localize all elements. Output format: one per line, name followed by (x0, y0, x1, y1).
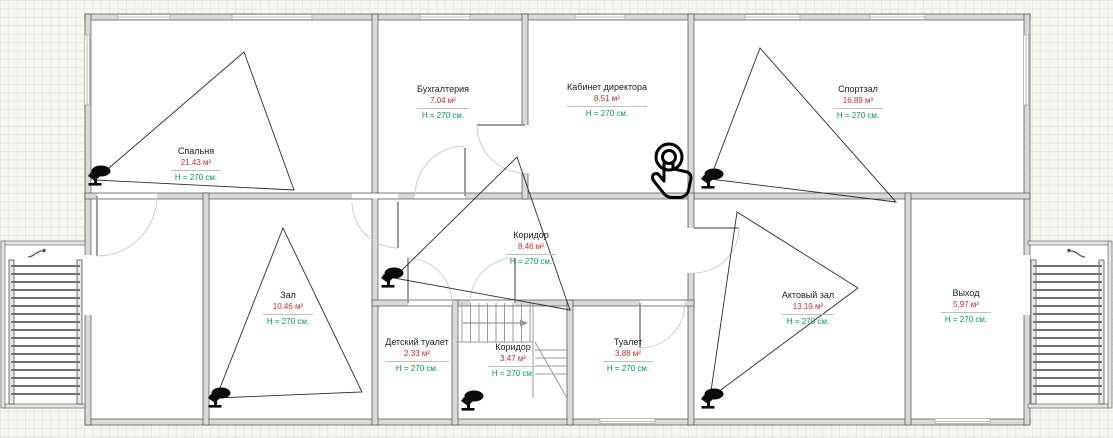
room-label-aktovyi-zal[interactable]: Актовый зал 13.19 м² H = 270 см. (782, 290, 834, 327)
window (870, 15, 925, 20)
room-label-zal[interactable]: Зал 10.46 м² H = 270 см. (263, 290, 313, 327)
room-label-buhgalteriya[interactable]: Бухгалтерия 7.04 м² H = 270 см. (417, 84, 469, 121)
room-label-vyhod[interactable]: Выход 5.97 м² H = 270 см. (941, 288, 991, 325)
exit-opening (935, 419, 990, 424)
window (745, 15, 800, 20)
room-label-detskiy-tualet[interactable]: Детский туалет 2.33 м² H = 270 см. (385, 337, 449, 374)
floor-plan (0, 0, 1113, 438)
room-label-koridor-lestnitsa[interactable]: Коридор 3.47 м² H = 270 см. (488, 342, 538, 379)
window (232, 15, 312, 20)
exit-opening (600, 419, 655, 424)
building-footprint (5, 14, 1108, 425)
window (1024, 35, 1029, 105)
window (575, 15, 625, 20)
room-label-koridor[interactable]: Коридор 8.46 м² H = 270 см. (506, 230, 556, 267)
room-label-sportzal[interactable]: Спортзал 16.89 м² H = 270 см. (833, 84, 883, 121)
window (118, 15, 170, 20)
room-label-tualet[interactable]: Туалет 3.88 м² H = 270 см. (603, 337, 653, 374)
room-label-spalnya[interactable]: Спальня 21.43 м² H = 270 см. (171, 146, 221, 183)
window (420, 15, 470, 20)
window (85, 35, 90, 105)
floor-plan-canvas: Спальня 21.43 м² H = 270 см. Бухгалтерия… (0, 0, 1113, 438)
room-label-kabinet-direktora[interactable]: Кабинет директора 8.51 м² H = 270 см. (567, 82, 647, 119)
